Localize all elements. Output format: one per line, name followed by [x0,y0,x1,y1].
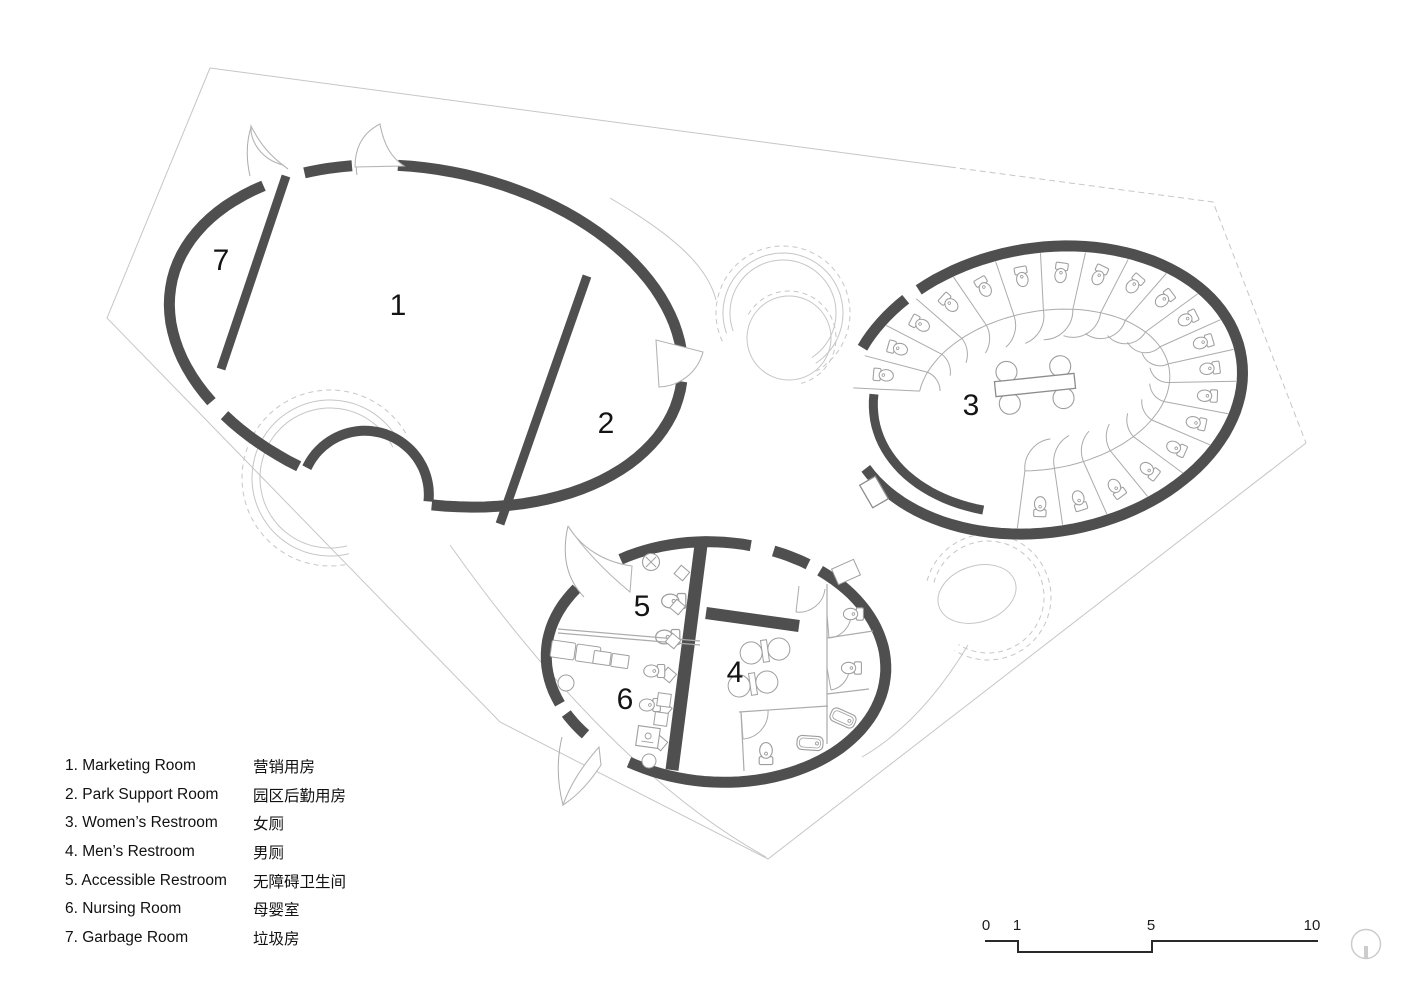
scalebar-label-5: 5 [1147,917,1155,934]
room-label-7: 7 [213,246,230,276]
room-label-5: 5 [634,592,651,622]
building-1-partitions [221,176,587,524]
legend: 1. Marketing Room营销用房2. Park Support Roo… [65,752,346,952]
scalebar-label-10: 10 [1304,917,1321,934]
legend-label-en: 3. Women’s Restroom [65,814,253,832]
building-1-doors [247,124,703,387]
legend-label-en: 7. Garbage Room [65,929,253,947]
scalebar-label-0: 0 [982,917,990,934]
legend-row: 1. Marketing Room营销用房 [65,752,346,781]
room-label-6: 6 [617,685,634,715]
legend-row: 4. Men’s Restroom男厕 [65,838,346,867]
legend-label-en: 1. Marketing Room [65,757,253,775]
legend-row: 2. Park Support Room园区后勤用房 [65,781,346,810]
legend-row: 6. Nursing Room母婴室 [65,895,346,924]
courtyard-left [242,390,408,566]
legend-label-zh: 母婴室 [253,898,300,920]
legend-label-en: 4. Men’s Restroom [65,843,253,861]
room-label-3: 3 [963,391,980,421]
legend-label-en: 5. Accessible Restroom [65,872,253,890]
scalebar-label-1: 1 [1013,917,1021,934]
courtyard-right [927,534,1051,660]
legend-label-zh: 营销用房 [253,755,315,777]
legend-row: 7. Garbage Room垃圾房 [65,924,346,953]
room-label-4: 4 [727,658,744,688]
legend-label-zh: 垃圾房 [253,927,300,949]
legend-label-zh: 女厕 [253,812,284,834]
legend-label-zh: 无障碍卫生间 [253,870,346,892]
floor-plan-page: 1234567 1. Marketing Room营销用房2. Park Sup… [0,0,1414,1000]
walkway-lines [450,198,968,857]
legend-label-en: 2. Park Support Room [65,786,253,804]
legend-row: 3. Women’s Restroom女厕 [65,809,346,838]
courtyard-top-center [716,246,850,383]
compass-icon [1352,930,1381,959]
building-1-walls [138,120,715,551]
legend-row: 5. Accessible Restroom无障碍卫生间 [65,866,346,895]
room-label-2: 2 [598,409,615,439]
building-456-fixtures [550,554,873,772]
scale-bar [985,941,1318,952]
legend-label-zh: 男厕 [253,841,284,863]
room-label-1: 1 [390,291,407,321]
legend-label-zh: 园区后勤用房 [253,784,346,806]
legend-label-en: 6. Nursing Room [65,900,253,918]
